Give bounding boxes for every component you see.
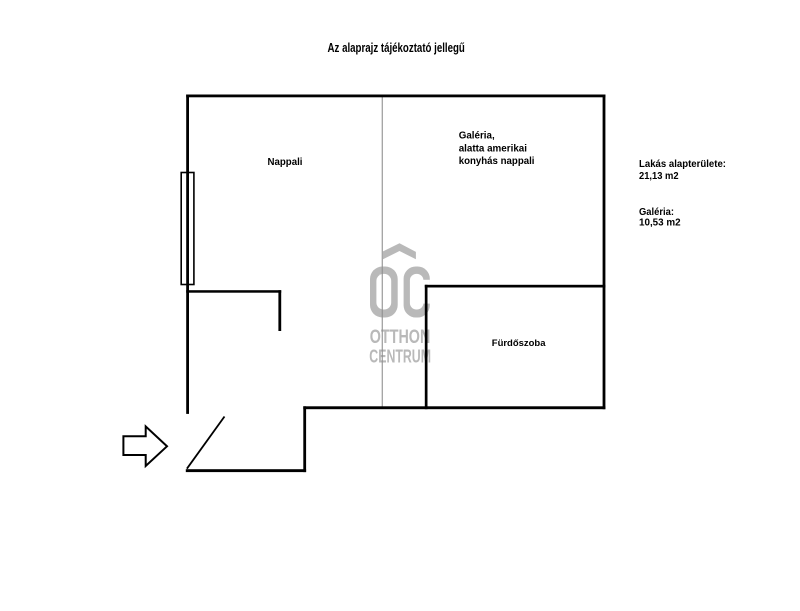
svg-text:alatta amerikai: alatta amerikai: [459, 144, 527, 155]
svg-text:Galéria,: Galéria,: [459, 131, 495, 142]
svg-text:CENTRUM: CENTRUM: [369, 346, 431, 367]
svg-text:21,13 m2: 21,13 m2: [639, 171, 679, 182]
svg-text:Az alaprajz tájékoztató jelleg: Az alaprajz tájékoztató jellegű: [328, 41, 465, 55]
svg-text:Fürdőszoba: Fürdőszoba: [492, 338, 547, 348]
svg-text:10,53 m2: 10,53 m2: [639, 218, 681, 229]
svg-text:Galéria:: Galéria:: [639, 207, 674, 218]
svg-text:konyhás nappali: konyhás nappali: [459, 156, 535, 167]
svg-text:Nappali: Nappali: [268, 157, 303, 168]
svg-text:Lakás alapterülete:: Lakás alapterülete:: [639, 159, 726, 170]
